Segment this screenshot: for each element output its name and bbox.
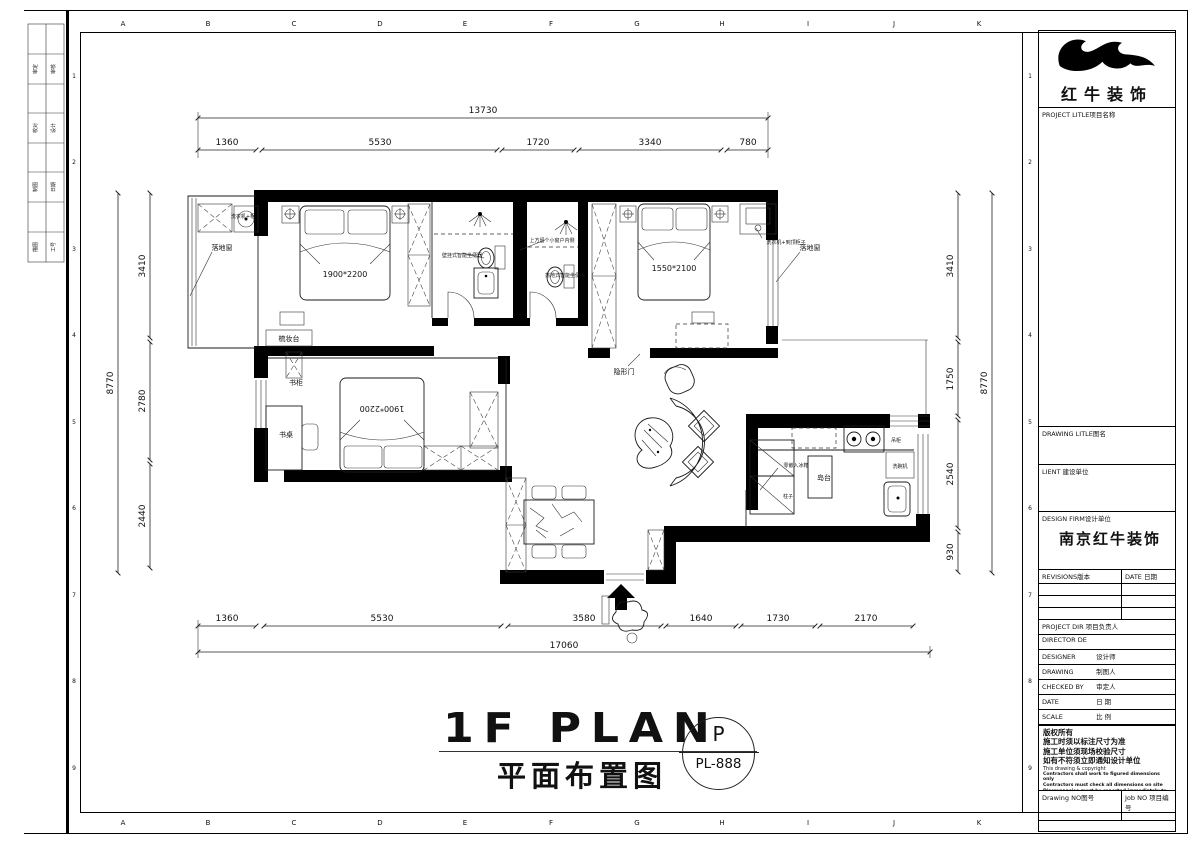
svg-text:H: H (719, 20, 724, 28)
svg-text:I: I (807, 20, 809, 28)
svg-text:2: 2 (1028, 159, 1032, 166)
revisions-header-row: REVISIONS版本 DATE 日期 (1039, 569, 1175, 583)
label-wc1: 壁挂式智能坐便器 (442, 252, 482, 259)
label-bookcase: 书柜 (289, 378, 303, 387)
revisions-empty-row-1 (1039, 583, 1175, 595)
svg-text:D: D (377, 20, 382, 28)
title-block-panel: 红牛装饰 PROJECT LITLE项目名称 DRAWING LITLE图名 L… (1038, 30, 1176, 832)
project-title-row: PROJECT LITLE项目名称 (1039, 107, 1175, 426)
label-hang-cabinet: 吊柜 (891, 437, 901, 444)
svg-text:D: D (377, 819, 382, 827)
svg-text:3: 3 (1028, 246, 1032, 253)
svg-text:8770: 8770 (980, 371, 990, 394)
svg-text:B: B (206, 20, 211, 28)
svg-text:C: C (292, 20, 297, 28)
label-washer-left: 洗衣机+柜 (231, 213, 255, 220)
svg-text:3580: 3580 (573, 614, 596, 624)
svg-text:780: 780 (739, 138, 756, 148)
svg-text:设计: 设计 (50, 123, 57, 133)
frame-column-letters-top: AB CD EF GH IJ K (121, 20, 982, 28)
svg-text:930: 930 (946, 543, 956, 560)
drawing-title-en: 1F PLAN (443, 704, 720, 752)
svg-text:9: 9 (1028, 765, 1032, 772)
logo-block: 红牛装饰 (1039, 31, 1175, 107)
svg-text:6: 6 (72, 505, 76, 512)
entry (602, 584, 648, 643)
director-row: DIRECTOR DE (1039, 634, 1175, 649)
svg-text:E: E (463, 819, 467, 827)
label-desk: 书桌 (279, 430, 293, 439)
brand-name: 红牛装饰 (1039, 81, 1175, 105)
svg-text:3410: 3410 (138, 254, 148, 277)
checked-by-row: CHECKED BY 审定人 (1039, 679, 1175, 694)
client-row: LIENT 建设单位 (1039, 464, 1175, 511)
frame-row-numbers-left: 12 34 56 78 9 (72, 73, 76, 772)
label-balcony-window-right: 落地窗 (800, 243, 821, 252)
bathroom-2 (530, 220, 577, 318)
svg-text:B: B (206, 819, 211, 827)
svg-text:K: K (977, 20, 982, 28)
stamp-divider (679, 752, 759, 753)
scale-row: SCALE 比 例 (1039, 709, 1175, 724)
svg-text:5530: 5530 (371, 614, 394, 624)
drawing-title-row: DRAWING LITLE图名 (1039, 426, 1175, 464)
svg-text:C: C (292, 819, 297, 827)
drawing-person-row: DRAWING 制图人 (1039, 664, 1175, 679)
dining-area (524, 486, 594, 558)
drawing-no-row: Drawing NO图号 Job NO 项目编号 (1039, 790, 1175, 821)
sign-block: 审定 审核 校对 设计 制图 日期 描图 工号 (28, 24, 64, 262)
drawing-sheet: AB CD EF GH IJ K AB CD EF GH IJ K 12 34 … (0, 0, 1200, 845)
label-window-note: 上方留个小窗户内侧 (529, 237, 574, 244)
svg-text:J: J (892, 20, 895, 28)
label-fridge: 零嵌入冰箱 (783, 462, 808, 469)
svg-text:1360: 1360 (216, 614, 239, 624)
svg-text:I: I (807, 819, 809, 827)
svg-text:5530: 5530 (369, 138, 392, 148)
svg-text:9: 9 (72, 765, 76, 772)
svg-text:7: 7 (1028, 592, 1032, 599)
label-column: 柱子 (783, 493, 793, 500)
svg-text:审定: 审定 (32, 64, 39, 74)
svg-text:4: 4 (1028, 332, 1032, 339)
brand-logo-swoosh (1049, 33, 1169, 79)
svg-text:1640: 1640 (690, 614, 713, 624)
label-bed3-size: 1550*2100 (652, 264, 697, 273)
kitchen (750, 426, 914, 516)
label-bed2-size: 1900*2200 (360, 404, 405, 413)
label-dishwasher: 洗碗机 (892, 463, 907, 470)
svg-text:3340: 3340 (639, 138, 662, 148)
svg-text:1730: 1730 (767, 614, 790, 624)
drawing-title-cn: 平面布置图 (497, 753, 667, 795)
svg-text:校对: 校对 (32, 123, 39, 133)
svg-text:2170: 2170 (855, 614, 878, 624)
svg-text:1: 1 (1028, 73, 1032, 80)
label-hidden-door: 隐形门 (614, 367, 635, 376)
label-dresser: 梳妆台 (279, 334, 300, 343)
svg-text:17060: 17060 (550, 641, 579, 651)
svg-text:5: 5 (72, 419, 76, 426)
design-firm-row: DESIGN FIRM设计单位 南京红牛装饰 (1039, 511, 1175, 569)
thin-walls-and-windows (188, 196, 930, 580)
svg-text:审核: 审核 (50, 64, 57, 74)
svg-text:G: G (634, 819, 639, 827)
date-row: DATE 日 期 (1039, 694, 1175, 709)
svg-text:2540: 2540 (946, 462, 956, 485)
bathroom-1 (448, 212, 505, 318)
project-dir-row: PROJECT DIR 项目负责人 (1039, 619, 1175, 634)
svg-text:1750: 1750 (946, 367, 956, 390)
svg-text:K: K (977, 819, 982, 827)
revisions-date-header: DATE 日期 (1121, 570, 1160, 583)
svg-text:A: A (121, 819, 126, 827)
dimensions-left: 8770 3410 2780 2440 (106, 193, 150, 573)
svg-text:8: 8 (72, 678, 76, 685)
svg-text:1360: 1360 (216, 138, 239, 148)
dimensions-right: 3410 1750 2540 930 8770 (946, 193, 992, 573)
bedroom-2 (266, 378, 424, 472)
label-balcony-window-left: 落地窗 (212, 243, 233, 252)
revisions-empty-row-3 (1039, 607, 1175, 619)
living-room (635, 361, 720, 486)
svg-text:A: A (121, 20, 126, 28)
dimensions-top: 13730 1360 5530 1720 3340 780 (198, 106, 768, 158)
svg-text:4: 4 (72, 332, 76, 339)
svg-text:工号: 工号 (51, 242, 57, 252)
svg-text:描图: 描图 (32, 242, 39, 252)
svg-text:2780: 2780 (138, 389, 148, 412)
dimensions-bottom: 1360 5530 3580 1640 1730 2170 17060 (198, 614, 930, 658)
svg-text:日期: 日期 (51, 182, 57, 192)
svg-text:2440: 2440 (138, 504, 148, 527)
svg-text:5: 5 (1028, 419, 1032, 426)
design-firm-value: 南京红牛装饰 (1042, 528, 1175, 549)
frame-row-numbers-right: 12 34 56 78 9 (1028, 73, 1032, 772)
svg-text:8770: 8770 (106, 371, 116, 394)
svg-text:1: 1 (72, 73, 76, 80)
revisions-empty-row-2 (1039, 595, 1175, 607)
svg-text:J: J (892, 819, 895, 827)
frame-column-letters-bottom: AB CD EF GH IJ K (121, 819, 982, 827)
copyright-block: 版权所有 施工时须以标注尺寸为准 施工单位须现场校验尺寸 如有不符须立即通知设计… (1039, 724, 1175, 790)
job-no-cell: Job NO 项目编号 (1121, 791, 1175, 820)
svg-text:2: 2 (72, 159, 76, 166)
svg-text:F: F (549, 20, 553, 28)
label-wc2: 落地式智能坐便器 (545, 272, 585, 279)
drawing-number-stamp: P PL-888 (682, 717, 755, 790)
designer-row: DESIGNER 设计师 (1039, 649, 1175, 664)
bedroom-topright (620, 204, 776, 348)
plan-labels: 落地窗 洗衣机+柜 1900*2200 梳妆台 书柜 书桌 1900*2200 … (190, 213, 908, 500)
svg-text:8: 8 (1028, 678, 1032, 685)
label-island: 岛台 (817, 473, 831, 482)
svg-text:制图: 制图 (32, 182, 39, 192)
stamp-letter: P (683, 722, 754, 746)
svg-text:1720: 1720 (527, 138, 550, 148)
svg-text:3410: 3410 (946, 254, 956, 277)
svg-text:H: H (719, 819, 724, 827)
svg-text:F: F (549, 819, 553, 827)
label-bed1-size: 1900*2200 (323, 270, 368, 279)
svg-text:G: G (634, 20, 639, 28)
svg-text:6: 6 (1028, 505, 1032, 512)
svg-text:7: 7 (72, 592, 76, 599)
stamp-code: PL-888 (683, 756, 754, 772)
svg-text:E: E (463, 20, 467, 28)
svg-text:13730: 13730 (469, 106, 498, 116)
svg-text:3: 3 (72, 246, 76, 253)
